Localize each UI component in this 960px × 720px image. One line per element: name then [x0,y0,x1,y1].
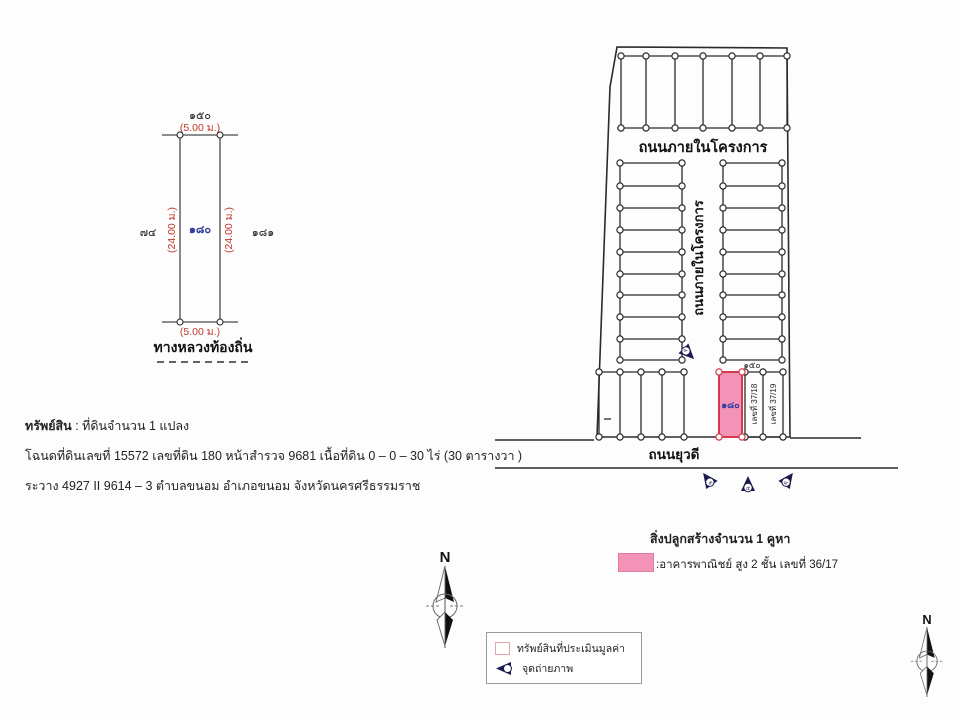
survey-marker [679,292,685,298]
survey-marker [679,183,685,189]
survey-marker [729,53,735,59]
survey-marker [779,160,785,166]
survey-marker [638,369,644,375]
survey-marker [596,369,602,375]
photo-point-icon-right: ๔ [778,469,799,490]
frontage-dimension-bottom: (5.00 ม.) [180,326,220,338]
survey-marker [679,249,685,255]
building-description: :อาคารพาณิชย์ สูง 2 ชั้น เลขที่ 36/17 [656,556,838,574]
survey-marker [617,314,623,320]
survey-marker [779,336,785,342]
survey-marker [779,292,785,298]
photo-point-icon-left: ๓ [697,469,718,490]
survey-marker [779,357,785,363]
survey-marker [720,249,726,255]
survey-marker [217,319,223,325]
compass-blade-outline [920,666,927,695]
survey-marker [679,227,685,233]
internal-road-label: ถนนภายในโครงการ [639,138,768,156]
survey-marker [618,53,624,59]
left-neighbor-parcel-number: ๗๔ [140,227,157,239]
internal-road-vertical-label: ถนนภายในโครงการ [690,200,706,316]
survey-marker [720,271,726,277]
photo-point-icon [495,661,515,676]
survey-marker [617,434,623,440]
survey-marker [757,53,763,59]
survey-marker [659,434,665,440]
survey-marker [729,125,735,131]
survey-marker [617,271,623,277]
right-neighbor-parcel-number: ๑๘๑ [252,227,274,239]
right-depth-dimension: (24.00 ม.) [223,207,235,253]
survey-marker [720,160,726,166]
north-arrow-left: N [405,548,485,663]
survey-marker [779,271,785,277]
survey-marker [643,125,649,131]
survey-marker [779,249,785,255]
survey-marker [779,205,785,211]
survey-marker [720,314,726,320]
survey-marker [617,357,623,363]
house-number-37-19: เลขที่ 37/19 [767,383,778,424]
survey-marker [700,125,706,131]
survey-marker [700,53,706,59]
survey-marker [681,369,687,375]
survey-marker [672,53,678,59]
survey-marker [784,125,790,131]
survey-marker [780,434,786,440]
survey-marker [720,183,726,189]
survey-marker [617,183,623,189]
survey-marker [679,160,685,166]
front-road-label: ถนนยุวดี [649,447,700,463]
subject-parcel-number: ๑๘๐ [189,224,211,236]
survey-marker [720,336,726,342]
survey-marker [681,434,687,440]
appraisal-document-page: ๑๕๐ (5.00 ม.) ๗๔ (24.00 ม.) ๑๘๐ (24.00 ม… [0,0,960,720]
survey-marker [760,434,766,440]
survey-marker [760,369,766,375]
compass-blade-filled [927,666,934,695]
survey-marker [716,434,722,440]
photo-point-number: ๕ [746,486,750,492]
appraised-property-icon [495,642,510,655]
legend-box: ทรัพย์สินที่ประเมินมูลค่า จุดถ่ายภาพ [486,632,642,684]
survey-marker [720,292,726,298]
property-heading-line: ทรัพย์สิน : ที่ดินจำนวน 1 แปลง [25,420,189,433]
house-number-37-18: เลขที่ 37/18 [748,383,759,424]
map-sheet-line: ระวาง 4927 II 9614 – 3 ตำบลขนอม อำเภอขนอ… [25,480,420,493]
survey-marker [679,205,685,211]
building-title: สิ่งปลูกสร้างจำนวน 1 คูหา [650,529,790,549]
survey-marker [659,369,665,375]
property-heading-detail: : ที่ดินจำนวน 1 แปลง [75,419,189,433]
survey-marker [617,227,623,233]
survey-marker [779,314,785,320]
legend-item-appraised: ทรัพย์สินที่ประเมินมูลค่า [495,640,625,657]
map-subject-parcel-number: ๑๘๐ [721,400,740,410]
survey-marker [679,314,685,320]
survey-marker [679,336,685,342]
north-label: N [922,612,931,627]
survey-marker [617,369,623,375]
camera-circle [504,665,512,673]
legend-photo-label: จุดถ่ายภาพ [522,660,573,677]
compass-blade-filled [445,612,453,646]
property-heading: ทรัพย์สิน [25,419,72,433]
survey-marker [672,125,678,131]
parcel-sketch: ๑๕๐ (5.00 ม.) ๗๔ (24.00 ม.) ๑๘๐ (24.00 ม… [95,85,355,385]
survey-marker [596,434,602,440]
survey-marker [617,336,623,342]
compass-blade-outline [437,612,445,646]
subdivision-site-map: ถนนภายในโครงการ ถนนภายในโครงการ ๑๘๐ ๑๕๐ … [420,25,940,720]
survey-marker [617,249,623,255]
survey-marker [177,319,183,325]
legend-appraised-label: ทรัพย์สินที่ประเมินมูลค่า [517,640,625,657]
frontage-dimension-top: (5.00 ม.) [180,122,220,134]
survey-marker [720,357,726,363]
survey-marker [784,53,790,59]
survey-marker [617,205,623,211]
legend-item-photo: จุดถ่ายภาพ [495,660,573,677]
survey-marker [643,53,649,59]
survey-marker [618,125,624,131]
survey-marker [779,183,785,189]
top-neighbor-parcel-number: ๑๕๐ [189,110,211,122]
north-label: N [440,549,451,566]
survey-marker [716,369,722,375]
survey-marker [739,434,745,440]
survey-marker [679,357,685,363]
left-depth-dimension: (24.00 ม.) [166,207,178,253]
photo-point-icon-center: ๕ [741,476,755,492]
map-adjacent-parcel-number: ๑๕๐ [743,360,760,370]
north-arrow-right: N [892,612,960,712]
survey-marker [617,160,623,166]
survey-marker [779,227,785,233]
compass-group: N [911,612,943,697]
survey-marker [757,125,763,131]
building-highlight-swatch [618,553,654,572]
survey-marker [780,369,786,375]
survey-marker [638,434,644,440]
survey-marker [720,227,726,233]
survey-marker [720,205,726,211]
survey-marker [679,271,685,277]
local-road-label: ทางหลวงท้องถิ่น [154,337,253,355]
survey-marker [617,292,623,298]
